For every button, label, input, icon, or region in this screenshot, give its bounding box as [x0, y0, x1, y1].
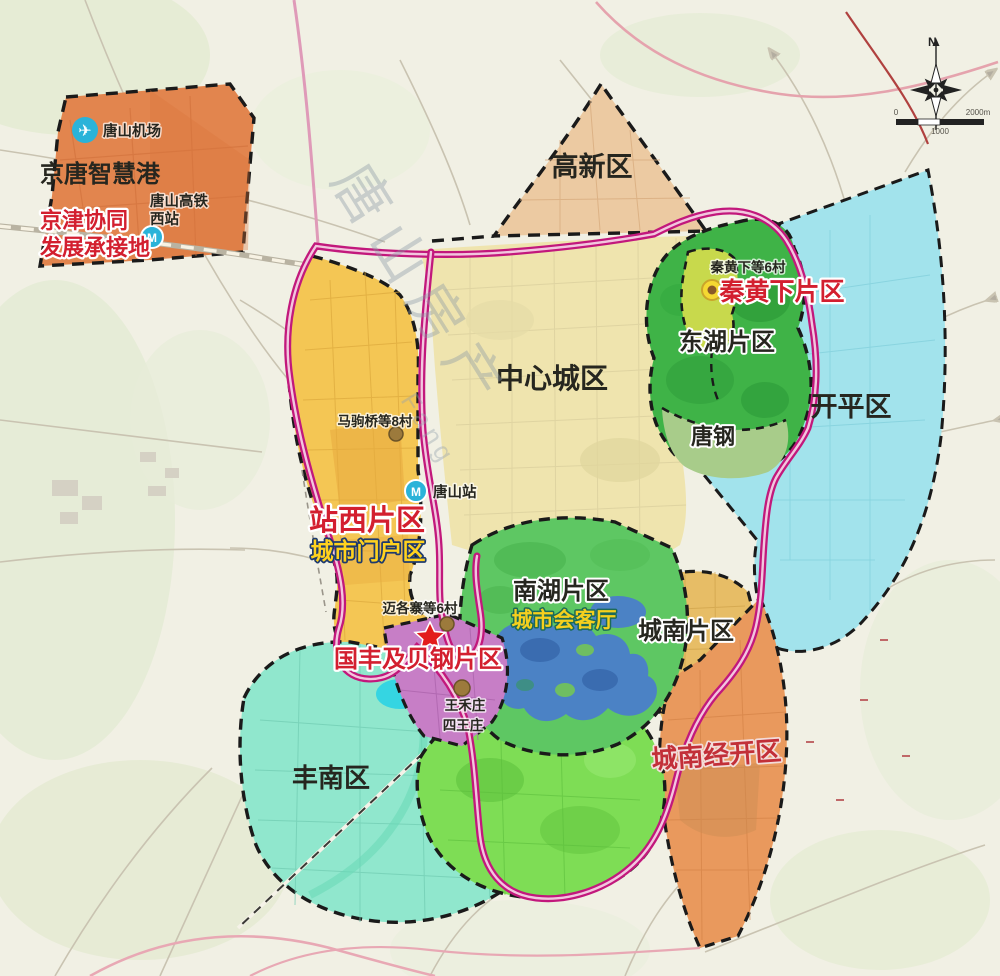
label-jingjin-line1: 京津协同	[40, 208, 128, 233]
label-majuqiao-villages: 马驹桥等8村	[337, 413, 413, 429]
scale-label-end: 2000m	[966, 108, 991, 117]
label-guofeng-beigang: 国丰及贝钢片区	[334, 646, 502, 673]
scale-label-mid: 1000	[931, 127, 949, 136]
label-fengnan: 丰南区	[292, 763, 370, 793]
label-tangshan-station: 唐山站	[433, 483, 477, 501]
label-hsr-west-line2: 西站	[150, 210, 179, 228]
village-dot-wanghezhuang	[454, 680, 470, 696]
label-wanghezhuang: 王禾庄	[445, 697, 486, 713]
label-zhanxi: 站西片区	[309, 504, 425, 537]
village-dot-majuqiao	[389, 427, 403, 441]
map-canvas: ✈ M M 唐山机场 京唐智慧港 京津协同 发展承接地 唐山高铁 西站 高新区	[0, 0, 1000, 976]
svg-text:✈: ✈	[78, 123, 91, 140]
label-kaiping: 开平区	[811, 392, 892, 422]
label-donghu: 东湖片区	[679, 328, 775, 356]
village-dot-maigezhai	[440, 617, 454, 631]
label-city-gateway: 城市门户区	[311, 538, 426, 564]
label-hsr-west-line1: 唐山高铁	[150, 192, 208, 210]
label-city-parlor: 城市会客厅	[512, 608, 617, 632]
label-qinhuangxia: 秦黄下片区	[718, 278, 844, 306]
scale-label-0: 0	[894, 108, 899, 117]
svg-text:M: M	[411, 485, 421, 499]
label-nanhu: 南湖片区	[513, 578, 609, 605]
tangshan-planning-map: ✈ M M 唐山机场 京唐智慧港 京津协同 发展承接地 唐山高铁 西站 高新区	[0, 0, 1000, 976]
label-jingtang-smart-port: 京唐智慧港	[40, 160, 161, 188]
airport-icon: ✈	[72, 117, 98, 143]
compass-north-label: N	[928, 35, 937, 49]
label-jingjin-line2: 发展承接地	[39, 235, 150, 260]
label-chengnan: 城南片区	[638, 617, 734, 645]
tangshan-station-icon: M	[405, 480, 427, 502]
label-airport: 唐山机场	[103, 122, 161, 140]
label-maigezhai-villages: 迈各寨等6村	[382, 600, 458, 616]
label-gaoxin: 高新区	[552, 151, 633, 182]
label-tanggang: 唐钢	[691, 424, 735, 449]
label-siwangzhuang: 四王庄	[443, 717, 484, 733]
label-qinhuangxia-villages: 秦黄下等6村	[709, 259, 786, 275]
